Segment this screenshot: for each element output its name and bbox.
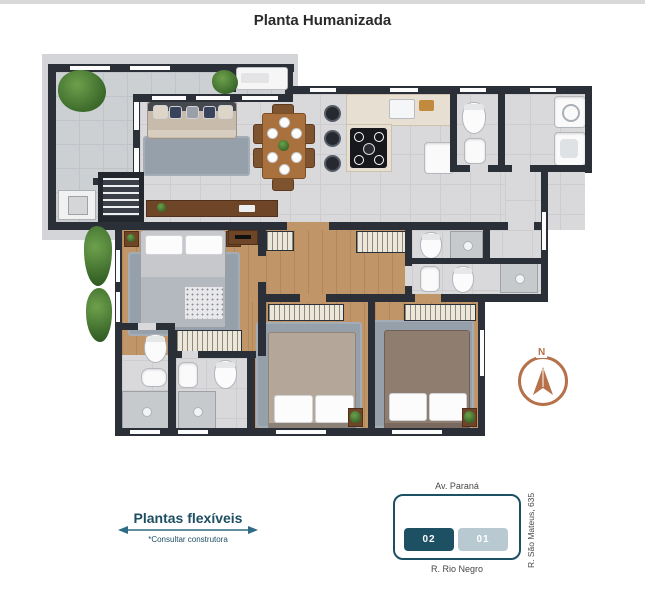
- plate: [279, 164, 290, 175]
- wall: [258, 230, 266, 356]
- door-opening: [258, 256, 266, 282]
- nightstand: [124, 231, 139, 247]
- kitchen-sink: [389, 99, 415, 119]
- page-title: Planta Humanizada: [0, 12, 645, 29]
- door-opening: [470, 165, 488, 172]
- wardrobe: [356, 231, 406, 253]
- plant-pot: [348, 408, 363, 427]
- door-opening: [287, 222, 329, 230]
- plate: [291, 128, 302, 139]
- toilet: [452, 266, 474, 293]
- compass-icon: [518, 356, 568, 406]
- outdoor-sink: [58, 190, 96, 220]
- master-bed: [140, 230, 226, 328]
- hedge-plant: [84, 226, 112, 286]
- living-rug: [143, 136, 250, 176]
- window: [130, 430, 160, 434]
- door-opening: [182, 351, 198, 358]
- window: [130, 66, 170, 70]
- bar-stool: [324, 105, 341, 122]
- window: [116, 292, 120, 322]
- cutting-board: [419, 100, 434, 111]
- shower: [500, 263, 538, 293]
- wall: [585, 86, 592, 173]
- burner: [363, 143, 375, 155]
- window: [530, 88, 556, 92]
- bedroom2-bed: [268, 332, 356, 430]
- bench-cushion: [241, 73, 269, 83]
- bed-pillow: [185, 235, 223, 255]
- sofa-pillow: [153, 105, 168, 119]
- burner: [354, 155, 364, 165]
- tub-basin: [560, 139, 578, 158]
- washer-door: [562, 104, 580, 122]
- dining-chair: [272, 178, 294, 191]
- terrace-plant: [58, 70, 106, 112]
- wall: [48, 64, 56, 230]
- washing-machine: [554, 96, 586, 128]
- wall: [168, 330, 176, 430]
- street-top-label: Av. Paraná: [393, 481, 521, 491]
- plate: [267, 152, 278, 163]
- tv-dresser: [228, 230, 258, 245]
- bed-throw-pattern: [185, 287, 223, 319]
- toilet: [420, 232, 442, 259]
- compass-needle-icon: [521, 359, 565, 403]
- wardrobe: [266, 231, 294, 251]
- bathroom-sink: [178, 362, 198, 388]
- sofa: [147, 101, 237, 139]
- window: [178, 430, 208, 434]
- sideboard-plant: [157, 203, 166, 212]
- unit-02-highlighted: 02: [404, 528, 454, 551]
- bed-pillow: [274, 395, 313, 423]
- compass-north-label: N: [536, 347, 547, 358]
- burner: [374, 132, 384, 142]
- sofa-pillow: [186, 106, 199, 119]
- window: [134, 102, 139, 130]
- door-opening: [508, 222, 534, 230]
- street-right-label: R. São Mateus, 635: [526, 486, 536, 574]
- hedge-plant: [86, 288, 112, 342]
- sofa-pillow: [203, 106, 216, 119]
- sofa-seat-edge: [148, 130, 236, 137]
- window-top-edge: [0, 0, 645, 4]
- wall: [368, 302, 375, 428]
- window: [242, 96, 278, 100]
- street-bottom-label: R. Rio Negro: [393, 564, 521, 574]
- window: [392, 430, 442, 434]
- bathroom-sink: [464, 138, 486, 164]
- burner: [354, 132, 364, 142]
- flexible-plans-label: Plantas flexíveis: [108, 511, 268, 526]
- burner: [374, 155, 384, 165]
- bar-stool: [324, 155, 341, 172]
- door-opening: [300, 294, 326, 302]
- toilet: [214, 360, 237, 389]
- laundry-tub: [554, 132, 586, 166]
- bathroom-sink: [420, 266, 440, 292]
- kitchen-counter: [346, 94, 454, 126]
- window: [276, 430, 326, 434]
- door-opening: [415, 294, 441, 302]
- dining-table: [262, 113, 306, 179]
- sofa-pillow: [218, 105, 233, 119]
- terrace-plant: [212, 70, 238, 94]
- toilet: [462, 102, 486, 134]
- sideboard: [146, 200, 278, 217]
- bathroom-sink: [141, 368, 167, 387]
- bed-pillow: [389, 393, 427, 421]
- wall: [483, 230, 490, 258]
- plate: [267, 128, 278, 139]
- double-arrow-icon: [118, 525, 258, 535]
- terrace-door: [134, 148, 139, 174]
- plate: [291, 152, 302, 163]
- window: [116, 250, 120, 282]
- window: [196, 96, 230, 100]
- terrace-bench: [236, 67, 288, 90]
- unit-01: 01: [458, 528, 508, 551]
- wall: [115, 222, 548, 230]
- table-centerpiece: [278, 140, 289, 151]
- wardrobe: [404, 304, 476, 321]
- sink-basin: [68, 196, 88, 215]
- cooktop: [350, 128, 387, 168]
- window: [310, 88, 336, 92]
- bar-stool: [324, 130, 341, 147]
- flexible-plans-legend: Plantas flexíveis *Consultar construtora: [108, 511, 268, 545]
- wardrobe: [268, 304, 344, 321]
- plant-pot: [462, 408, 477, 427]
- wall: [498, 94, 505, 172]
- tv: [235, 235, 251, 239]
- bed-pillow: [145, 235, 183, 255]
- wall: [450, 94, 457, 172]
- window: [542, 212, 546, 250]
- location-map: Av. Paraná 02 01 R. Rio Negro: [393, 481, 521, 574]
- toilet: [144, 334, 167, 363]
- wall: [247, 358, 255, 436]
- sofa-pillow: [169, 106, 182, 119]
- wardrobe: [176, 330, 242, 352]
- plate: [279, 117, 290, 128]
- door-opening: [138, 323, 156, 330]
- door-opening: [512, 165, 530, 172]
- entry-stairs: [103, 178, 139, 216]
- wall: [412, 258, 541, 264]
- sideboard-decor: [239, 205, 255, 212]
- entry-stair-block: [98, 172, 144, 222]
- door-opening: [405, 266, 412, 286]
- window: [152, 96, 186, 100]
- floor-plan-page: { "page": { "title": "Planta Humanizada"…: [0, 0, 645, 600]
- window: [480, 330, 484, 376]
- window: [460, 88, 486, 92]
- shower: [450, 231, 483, 259]
- shower: [122, 391, 170, 430]
- flexible-plans-note: *Consultar construtora: [108, 535, 268, 545]
- block-outline: 02 01: [393, 494, 521, 560]
- shower: [178, 391, 216, 430]
- window: [390, 88, 418, 92]
- bedroom3-bed: [384, 330, 470, 430]
